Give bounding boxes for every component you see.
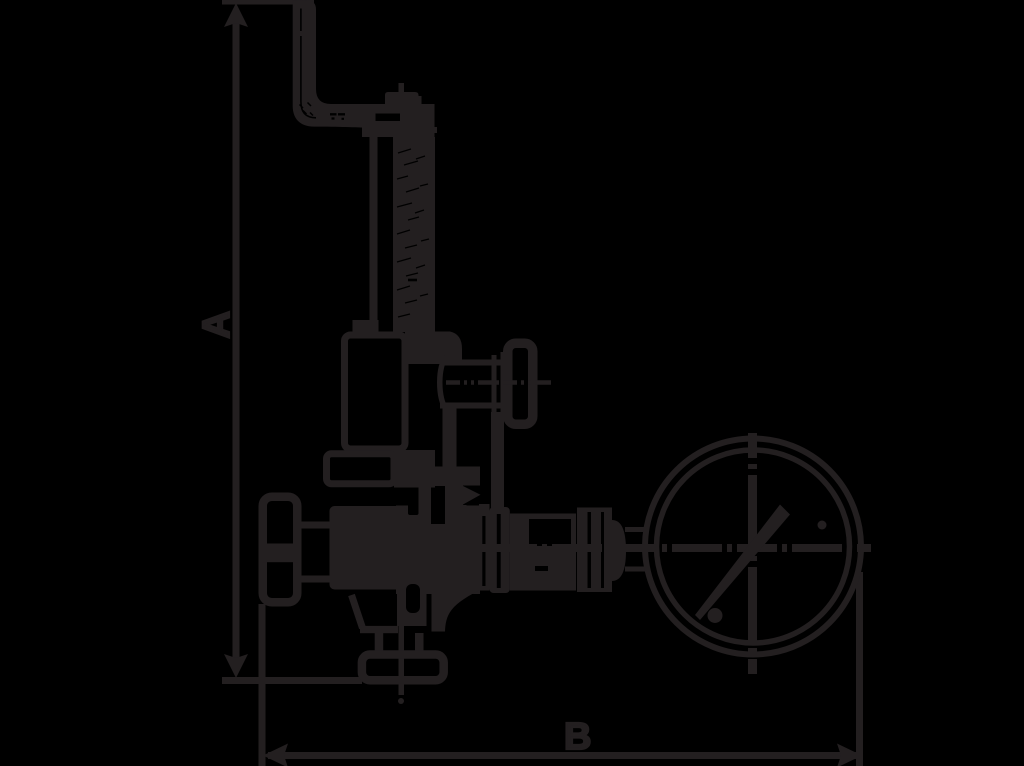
svg-text:B: B [564, 716, 591, 758]
svg-text:A: A [196, 311, 238, 338]
